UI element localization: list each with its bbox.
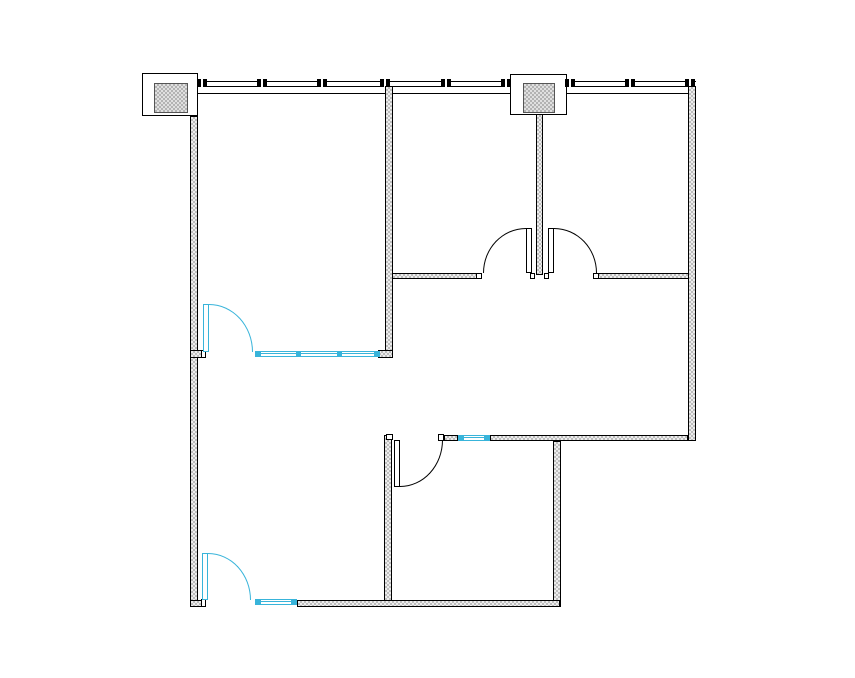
- wall-room3-north-a: [444, 435, 458, 441]
- glazed-partition-room3-cap-1: [484, 435, 489, 441]
- wall-bottom: [297, 600, 560, 607]
- mullion-0: [197, 79, 207, 87]
- glazed-partition-room3-cap-0: [459, 435, 464, 441]
- wall-right: [688, 86, 696, 441]
- jamb-stub-left: [530, 273, 535, 279]
- door-room4-swing-arc: [208, 553, 251, 600]
- door-room3-swing-arc: [400, 440, 443, 487]
- wall-hall-north-left: [392, 273, 482, 279]
- door-double-left-swing-arc: [483, 228, 526, 273]
- wall-mid-upper: [385, 86, 393, 358]
- jamb-stub-right: [544, 273, 549, 279]
- column-enclosure-b-pad: [523, 83, 555, 113]
- wall-left: [190, 116, 198, 607]
- jamb-double-door-right: [593, 273, 599, 279]
- door-room1-swing-arc: [209, 304, 253, 352]
- door-double-right-swing-arc: [554, 228, 597, 273]
- glazed-partition-room1-cap-2: [337, 351, 342, 357]
- glazed-partition-room1: [255, 351, 380, 357]
- wall-column-stub: [536, 114, 543, 275]
- mullion-1: [257, 79, 267, 87]
- glazed-partition-room1-cap-0: [256, 351, 261, 357]
- mullion-7: [625, 79, 635, 87]
- wall-room1-south-stub-right: [378, 350, 393, 358]
- jamb-double-door-left: [476, 273, 482, 279]
- glazed-partition-room1-cap-3: [374, 351, 379, 357]
- mullion-6: [565, 79, 575, 87]
- mullion-5: [501, 79, 511, 87]
- column-enclosure-a-pad: [154, 83, 188, 113]
- wall-lower-right: [553, 441, 561, 607]
- door-double-left-leaf: [526, 228, 532, 273]
- mullion-4: [441, 79, 451, 87]
- wall-room3-north-b: [490, 435, 688, 441]
- floor-plan-canvas: [0, 0, 855, 678]
- curtain-wall-inner-line: [188, 93, 689, 94]
- jamb-room4-door: [201, 599, 206, 607]
- glazed-partition-room1-cap-1: [296, 351, 301, 357]
- wall-mid-lower: [384, 435, 392, 607]
- wall-hall-north-right: [595, 273, 689, 279]
- mullion-2: [317, 79, 327, 87]
- glazed-partition-room4-cap-1: [291, 599, 296, 605]
- glazed-partition-room4-cap-0: [256, 599, 261, 605]
- curtain-wall-band-0: [198, 81, 510, 87]
- jamb-mid-lower-cap: [386, 434, 393, 440]
